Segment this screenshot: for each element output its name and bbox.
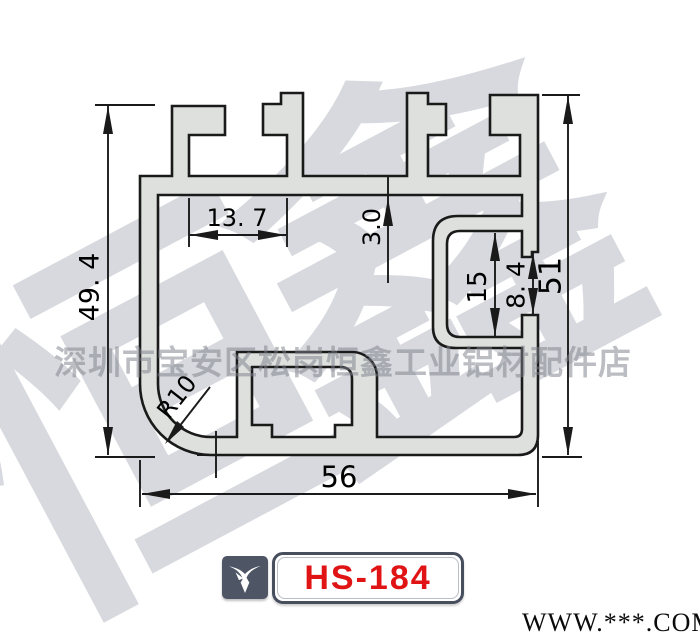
- arrowhead: [508, 489, 536, 499]
- dim-label-wall-thickness: 3.0: [358, 208, 386, 246]
- dim-label-height-left: 49. 4: [75, 253, 106, 322]
- website-text: WWW.***.COM: [522, 608, 700, 638]
- profile-cross-section-svg: [0, 0, 700, 644]
- model-number-plate: HS-184: [272, 552, 464, 604]
- arrowhead: [563, 427, 573, 455]
- arrowhead: [490, 233, 500, 261]
- arrowhead: [142, 489, 170, 499]
- arrowhead: [103, 106, 113, 134]
- arrowhead: [490, 308, 500, 336]
- dim-label-height-right: 51: [534, 257, 569, 295]
- model-number: HS-184: [275, 555, 461, 601]
- eagle-icon: [222, 556, 268, 599]
- dim-label-slot-width: 13. 7: [206, 204, 267, 232]
- drawing-canvas: 恒鑫: [0, 0, 700, 644]
- store-name-watermark: 深圳市宝安区松岗恒鑫工业铝材配件店: [54, 336, 694, 384]
- dim-label-overall-width: 56: [321, 460, 358, 494]
- brand-logo: [222, 556, 268, 599]
- arrowhead: [563, 96, 573, 124]
- dim-label-channel-opening: 8. 4: [502, 261, 531, 309]
- dim-label-channel-height: 15: [463, 270, 493, 303]
- arrowhead: [103, 427, 113, 455]
